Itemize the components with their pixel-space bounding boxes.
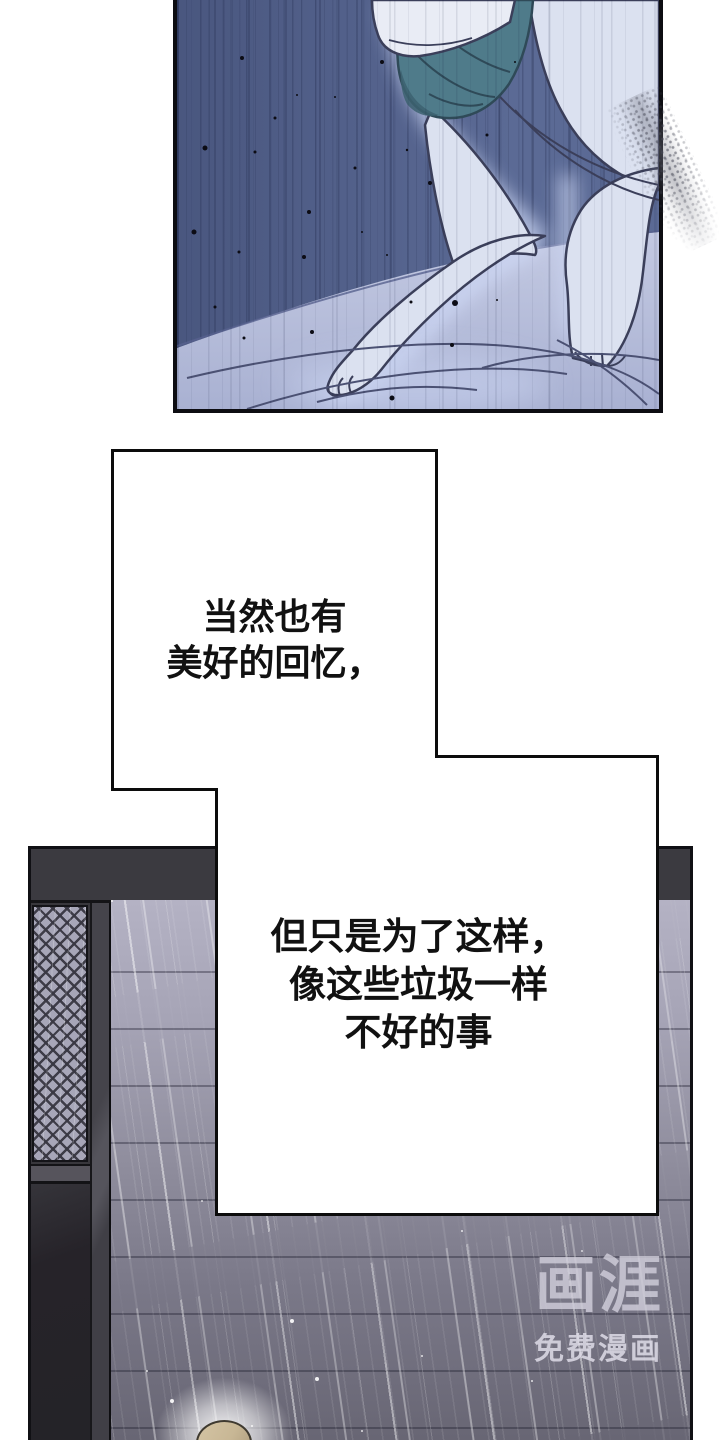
watermark-tagline: 免费漫画	[534, 1324, 662, 1368]
caption-line: 美好的回忆，	[114, 641, 435, 687]
top-panel-artwork	[173, 0, 663, 413]
frame-lower-block	[31, 1184, 90, 1440]
caption-line: 但只是为了这样，	[215, 913, 622, 961]
caption-box-1: 当然也有 美好的回忆，	[111, 449, 438, 791]
caption-box-2-top-border	[435, 755, 659, 758]
caption-line: 不好的事	[215, 1009, 622, 1057]
caption-line: 当然也有	[114, 595, 435, 641]
window-frame-column	[31, 903, 111, 1440]
rain-droplets	[111, 900, 113, 902]
frame-pillar	[90, 903, 111, 1440]
lattice-window	[32, 905, 88, 1162]
caption-line: 像这些垃圾一样	[215, 961, 622, 1009]
caption-box-2-left-border	[215, 788, 218, 1216]
comic-page: 画涯 免费漫画 当然也有 美好的回忆， 但只是为了这样， 像这些垃圾一样 不好的…	[0, 0, 720, 1440]
watermark-logo: 画涯	[535, 1252, 663, 1317]
window-sill	[31, 1164, 90, 1184]
caption-box-2: 但只是为了这样， 像这些垃圾一样 不好的事	[215, 755, 659, 1216]
top-panel-illustration	[177, 0, 659, 409]
